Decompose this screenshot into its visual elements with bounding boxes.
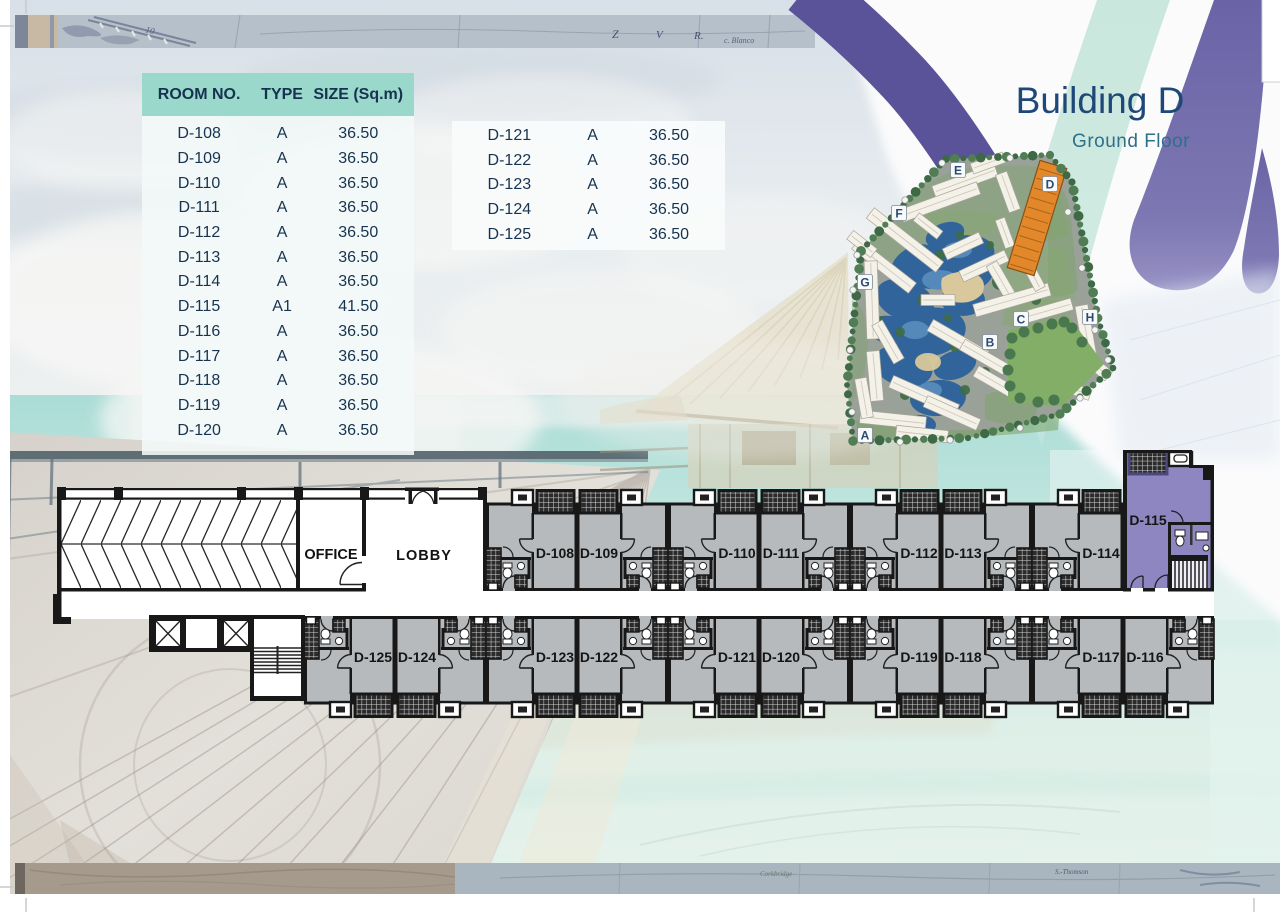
svg-text:LOBBY: LOBBY bbox=[396, 548, 452, 564]
svg-text:D-124: D-124 bbox=[398, 649, 436, 665]
svg-text:D-123: D-123 bbox=[536, 649, 574, 665]
svg-text:D-110: D-110 bbox=[718, 545, 756, 561]
svg-text:D-119: D-119 bbox=[900, 649, 938, 665]
svg-text:D-118: D-118 bbox=[944, 649, 982, 665]
svg-text:Z: Z bbox=[612, 27, 619, 41]
svg-text:D-125: D-125 bbox=[354, 649, 392, 665]
svg-text:D-112: D-112 bbox=[900, 545, 938, 561]
svg-text:D-115: D-115 bbox=[1129, 512, 1167, 528]
svg-text:D-108: D-108 bbox=[536, 545, 574, 561]
svg-text:F: F bbox=[895, 207, 902, 221]
svg-text:H: H bbox=[1086, 311, 1095, 325]
svg-text:C: C bbox=[1017, 313, 1026, 327]
svg-text:R.: R. bbox=[693, 30, 703, 42]
svg-text:D-122: D-122 bbox=[580, 649, 618, 665]
svg-text:D-114: D-114 bbox=[1082, 545, 1120, 561]
svg-text:D-111: D-111 bbox=[763, 545, 800, 561]
svg-text:D-109: D-109 bbox=[580, 545, 618, 561]
svg-text:S.-Thomson: S.-Thomson bbox=[1055, 868, 1089, 876]
svg-text:D-117: D-117 bbox=[1082, 649, 1120, 665]
svg-text:G: G bbox=[860, 276, 869, 290]
svg-text:D-116: D-116 bbox=[1126, 649, 1164, 665]
svg-text:OFFICE: OFFICE bbox=[304, 547, 357, 563]
svg-text:D: D bbox=[1046, 178, 1055, 192]
svg-text:D-121: D-121 bbox=[718, 649, 756, 665]
svg-text:E: E bbox=[954, 164, 962, 178]
svg-text:D-120: D-120 bbox=[762, 649, 800, 665]
svg-text:D-113: D-113 bbox=[944, 545, 982, 561]
svg-text:Corkbridge: Corkbridge bbox=[760, 870, 792, 878]
svg-text:c. Blanco: c. Blanco bbox=[724, 36, 754, 45]
svg-text:B: B bbox=[986, 336, 995, 350]
